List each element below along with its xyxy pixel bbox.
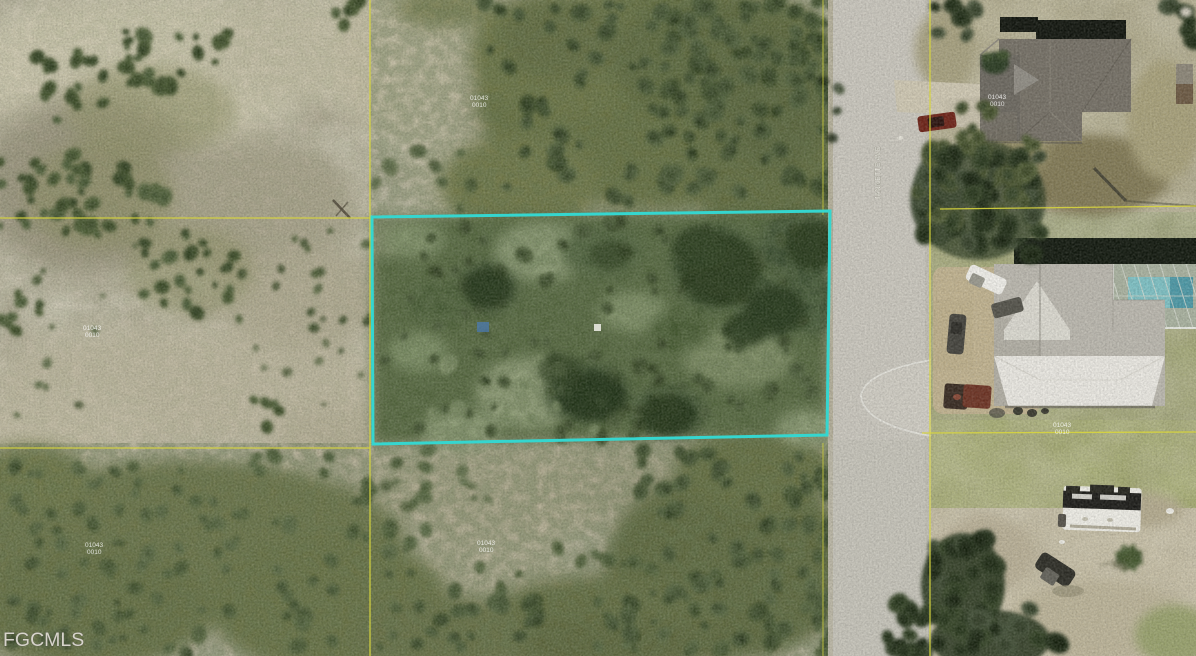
svg-text:0010: 0010 bbox=[472, 102, 487, 109]
svg-text:0010: 0010 bbox=[87, 549, 102, 556]
svg-text:0010: 0010 bbox=[990, 101, 1005, 108]
svg-text:0010: 0010 bbox=[1055, 429, 1070, 436]
svg-text:0010: 0010 bbox=[85, 332, 100, 339]
svg-text:01043: 01043 bbox=[83, 325, 101, 332]
svg-text:JANNETTE AVE: JANNETTE AVE bbox=[875, 146, 882, 200]
svg-text:01043: 01043 bbox=[988, 94, 1006, 101]
svg-text:01043: 01043 bbox=[470, 95, 488, 102]
svg-text:FGCMLS: FGCMLS bbox=[3, 629, 84, 651]
svg-text:01043: 01043 bbox=[85, 542, 103, 549]
svg-text:0010: 0010 bbox=[479, 547, 494, 554]
svg-text:01043: 01043 bbox=[477, 540, 495, 547]
svg-text:01043: 01043 bbox=[1053, 422, 1071, 429]
